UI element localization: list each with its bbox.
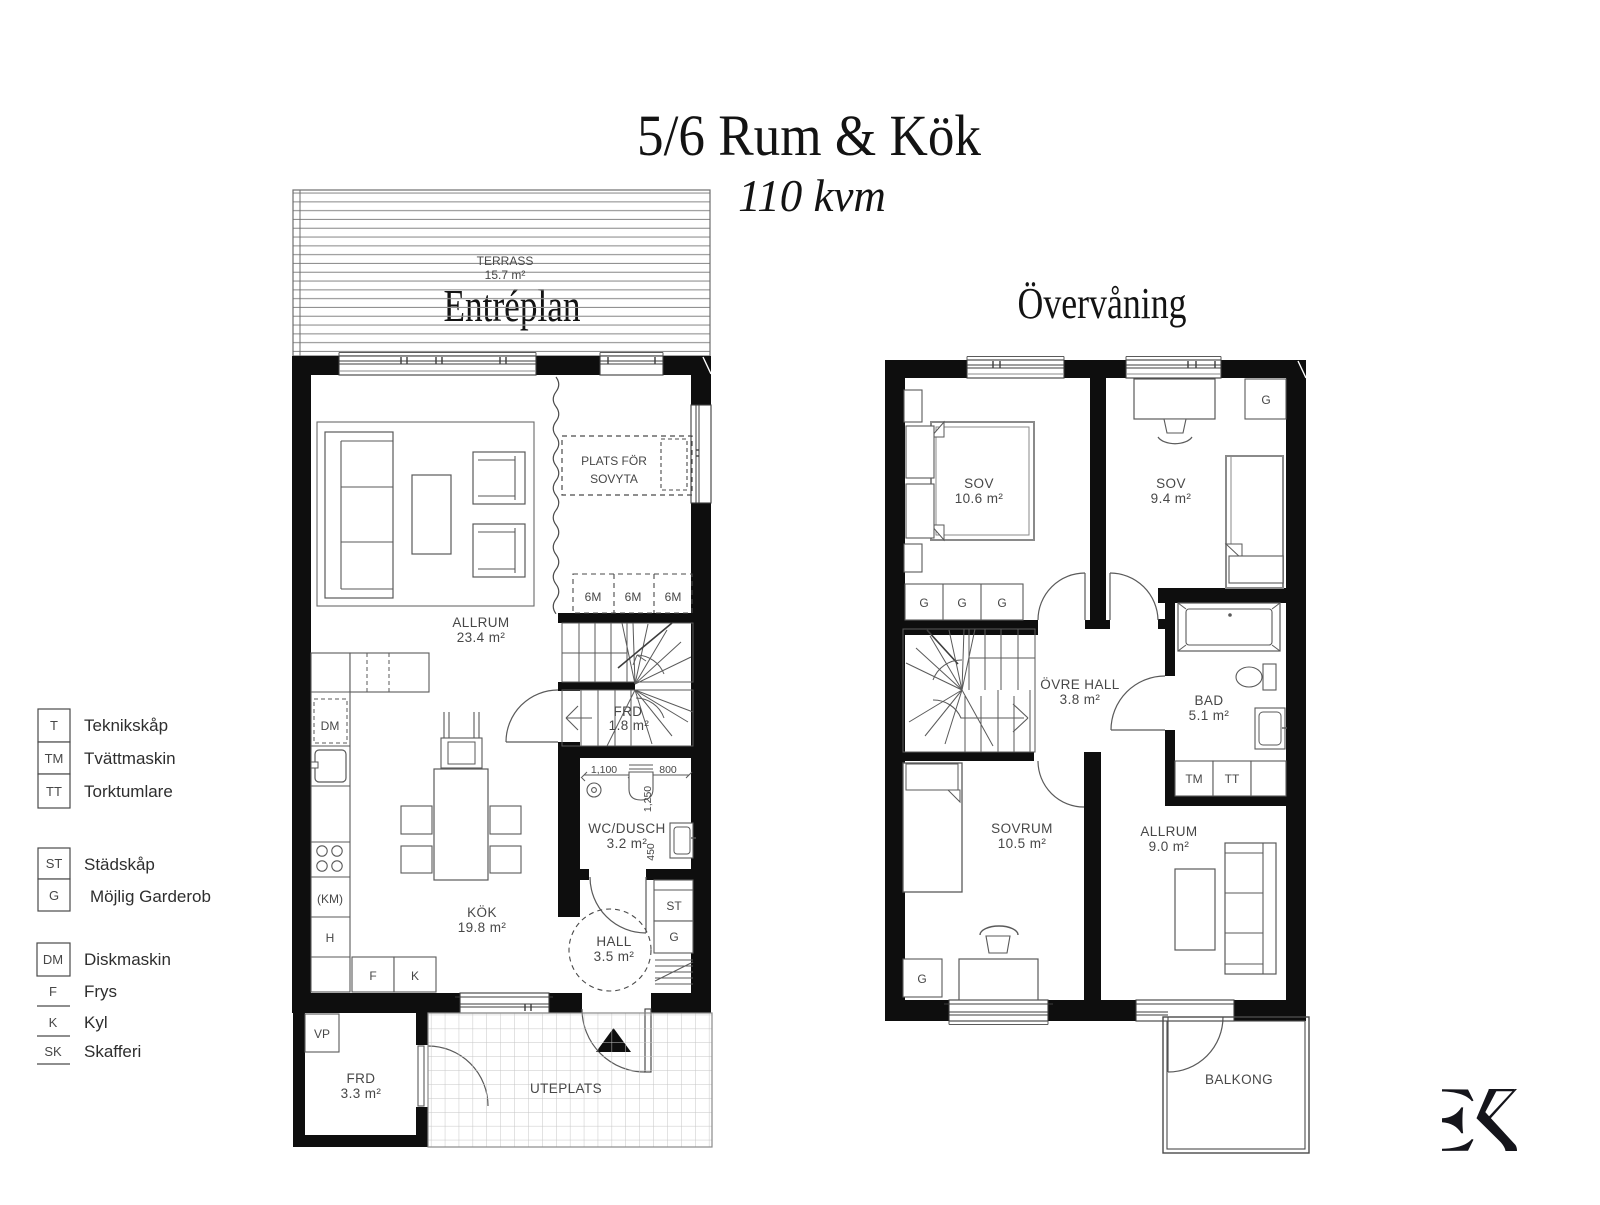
svg-text:1.8 m²: 1.8 m² <box>609 718 650 733</box>
svg-text:DM: DM <box>321 719 340 733</box>
svg-text:ALLRUM: ALLRUM <box>452 615 509 630</box>
svg-text:VP: VP <box>314 1027 330 1041</box>
svg-text:3.5 m²: 3.5 m² <box>594 949 635 964</box>
svg-text:TT: TT <box>46 784 62 799</box>
svg-text:BAD: BAD <box>1195 693 1224 708</box>
svg-text:H: H <box>326 931 335 945</box>
svg-text:HALL: HALL <box>596 934 631 949</box>
svg-text:ALLRUM: ALLRUM <box>1140 824 1197 839</box>
svg-text:Skafferi: Skafferi <box>84 1042 141 1061</box>
svg-text:1,100: 1,100 <box>591 764 617 776</box>
svg-text:5.1 m²: 5.1 m² <box>1189 708 1230 723</box>
svg-text:Torktumlare: Torktumlare <box>84 782 173 801</box>
svg-text:Teknikskåp: Teknikskåp <box>84 716 168 735</box>
svg-text:ÖVRE HALL: ÖVRE HALL <box>1040 677 1119 692</box>
svg-text:TERRASS: TERRASS <box>477 254 534 268</box>
svg-text:Möjlig Garderob: Möjlig Garderob <box>90 887 211 906</box>
svg-text:SOV: SOV <box>1156 476 1186 491</box>
svg-text:19.8 m²: 19.8 m² <box>458 920 507 935</box>
svg-text:ST: ST <box>666 899 682 913</box>
svg-text:G: G <box>919 596 928 610</box>
svg-text:G: G <box>997 596 1006 610</box>
svg-text:TT: TT <box>1225 772 1240 786</box>
svg-text:TM: TM <box>1185 772 1202 786</box>
svg-text:PLATS FÖR: PLATS FÖR <box>581 454 647 468</box>
svg-text:T: T <box>50 718 58 733</box>
svg-text:FRD: FRD <box>614 704 643 719</box>
svg-text:BALKONG: BALKONG <box>1205 1072 1273 1087</box>
svg-text:6M: 6M <box>585 590 602 604</box>
svg-text:3.2 m²: 3.2 m² <box>607 836 648 851</box>
svg-text:F: F <box>49 984 57 999</box>
svg-text:G: G <box>1261 393 1270 407</box>
svg-text:Frys: Frys <box>84 982 117 1001</box>
svg-text:K: K <box>411 969 419 983</box>
svg-text:G: G <box>957 596 966 610</box>
svg-text:9.4 m²: 9.4 m² <box>1151 491 1192 506</box>
svg-text:SOV: SOV <box>964 476 994 491</box>
svg-text:3.8 m²: 3.8 m² <box>1060 692 1101 707</box>
svg-text:G: G <box>669 930 678 944</box>
svg-text:110 kvm: 110 kvm <box>738 171 886 221</box>
svg-text:15.7 m²: 15.7 m² <box>485 268 526 282</box>
svg-text:WC/DUSCH: WC/DUSCH <box>588 821 665 836</box>
svg-text:800: 800 <box>659 764 677 776</box>
svg-text:9.0 m²: 9.0 m² <box>1149 839 1190 854</box>
svg-text:F: F <box>369 969 376 983</box>
svg-text:Diskmaskin: Diskmaskin <box>84 950 171 969</box>
svg-text:10.6 m²: 10.6 m² <box>955 491 1004 506</box>
svg-text:ST: ST <box>46 856 63 871</box>
svg-text:G: G <box>49 888 59 903</box>
svg-text:(KM): (KM) <box>317 892 343 906</box>
svg-text:1,250: 1,250 <box>642 786 654 812</box>
svg-text:5/6 Rum & Kök: 5/6 Rum & Kök <box>637 103 981 168</box>
svg-text:K: K <box>49 1015 58 1030</box>
svg-text:6M: 6M <box>665 590 682 604</box>
svg-text:G: G <box>917 972 926 986</box>
svg-text:Tvättmaskin: Tvättmaskin <box>84 749 176 768</box>
svg-text:6M: 6M <box>625 590 642 604</box>
svg-text:10.5 m²: 10.5 m² <box>998 836 1047 851</box>
svg-text:SOVRUM: SOVRUM <box>991 821 1053 836</box>
svg-text:SOVYTA: SOVYTA <box>590 472 638 486</box>
svg-text:SK: SK <box>44 1044 62 1059</box>
svg-text:23.4 m²: 23.4 m² <box>457 630 506 645</box>
svg-text:Städskåp: Städskåp <box>84 855 155 874</box>
svg-text:KÖK: KÖK <box>467 905 497 920</box>
svg-text:Kyl: Kyl <box>84 1013 108 1032</box>
svg-text:DM: DM <box>43 952 63 967</box>
svg-text:FRD: FRD <box>347 1071 376 1086</box>
svg-text:TM: TM <box>45 751 64 766</box>
svg-text:3.3 m²: 3.3 m² <box>341 1086 382 1101</box>
svg-text:Övervåning: Övervåning <box>1018 279 1187 328</box>
svg-text:UTEPLATS: UTEPLATS <box>530 1081 602 1096</box>
